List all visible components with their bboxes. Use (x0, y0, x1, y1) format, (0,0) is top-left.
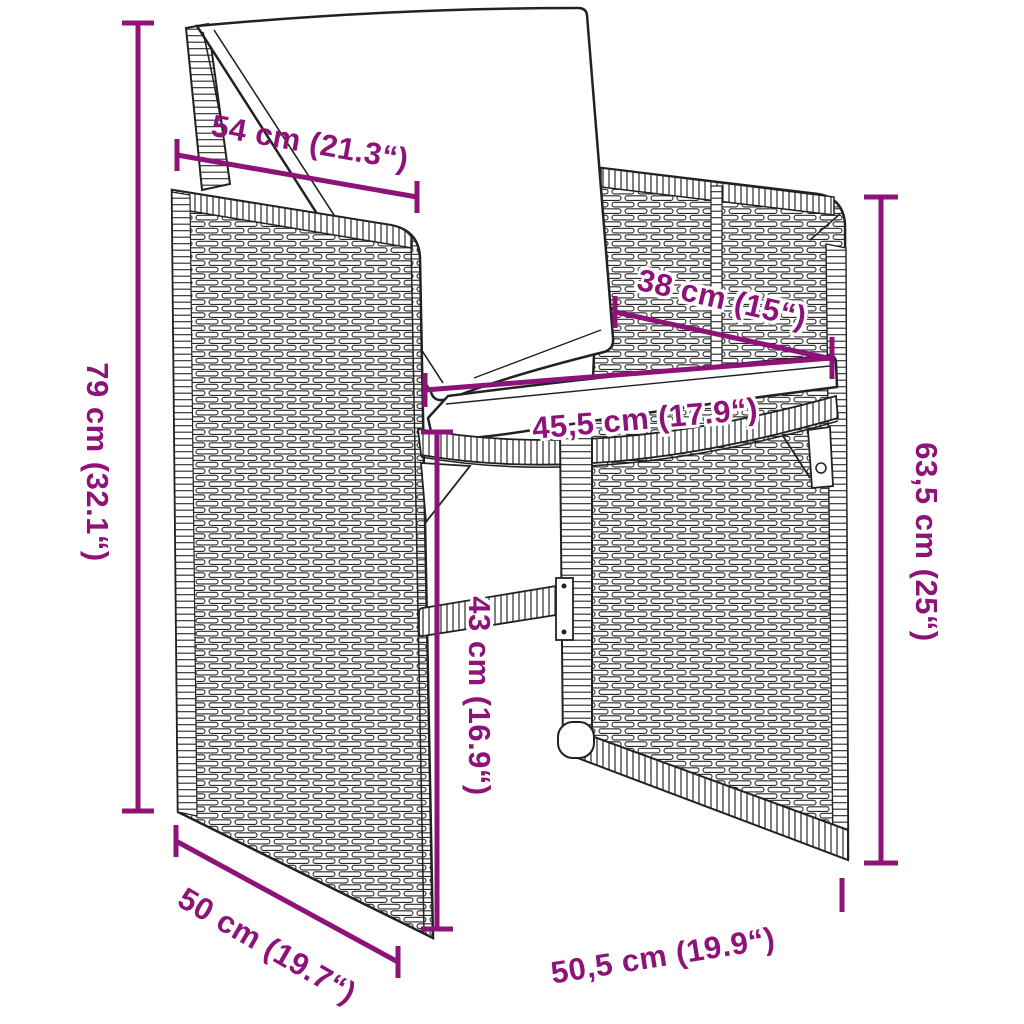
dimension-label-back-height: 79 cm (32.1“) (79, 362, 115, 562)
dimension-diagram: 54 cm (21.3“) 79 cm (32.1“) 38 cm (15“) … (0, 0, 1024, 1024)
dimension-line-overall-height (864, 197, 898, 863)
right-side-panel (567, 168, 848, 860)
left-side-panel (172, 190, 433, 938)
dimension-label-seat-height: 43 cm (16.9“) (461, 596, 497, 796)
dimension-label-overall-height: 63,5 cm (25“) (908, 442, 944, 642)
chair-line-art (0, 0, 1024, 1024)
dimension-line-back-height (122, 23, 154, 811)
